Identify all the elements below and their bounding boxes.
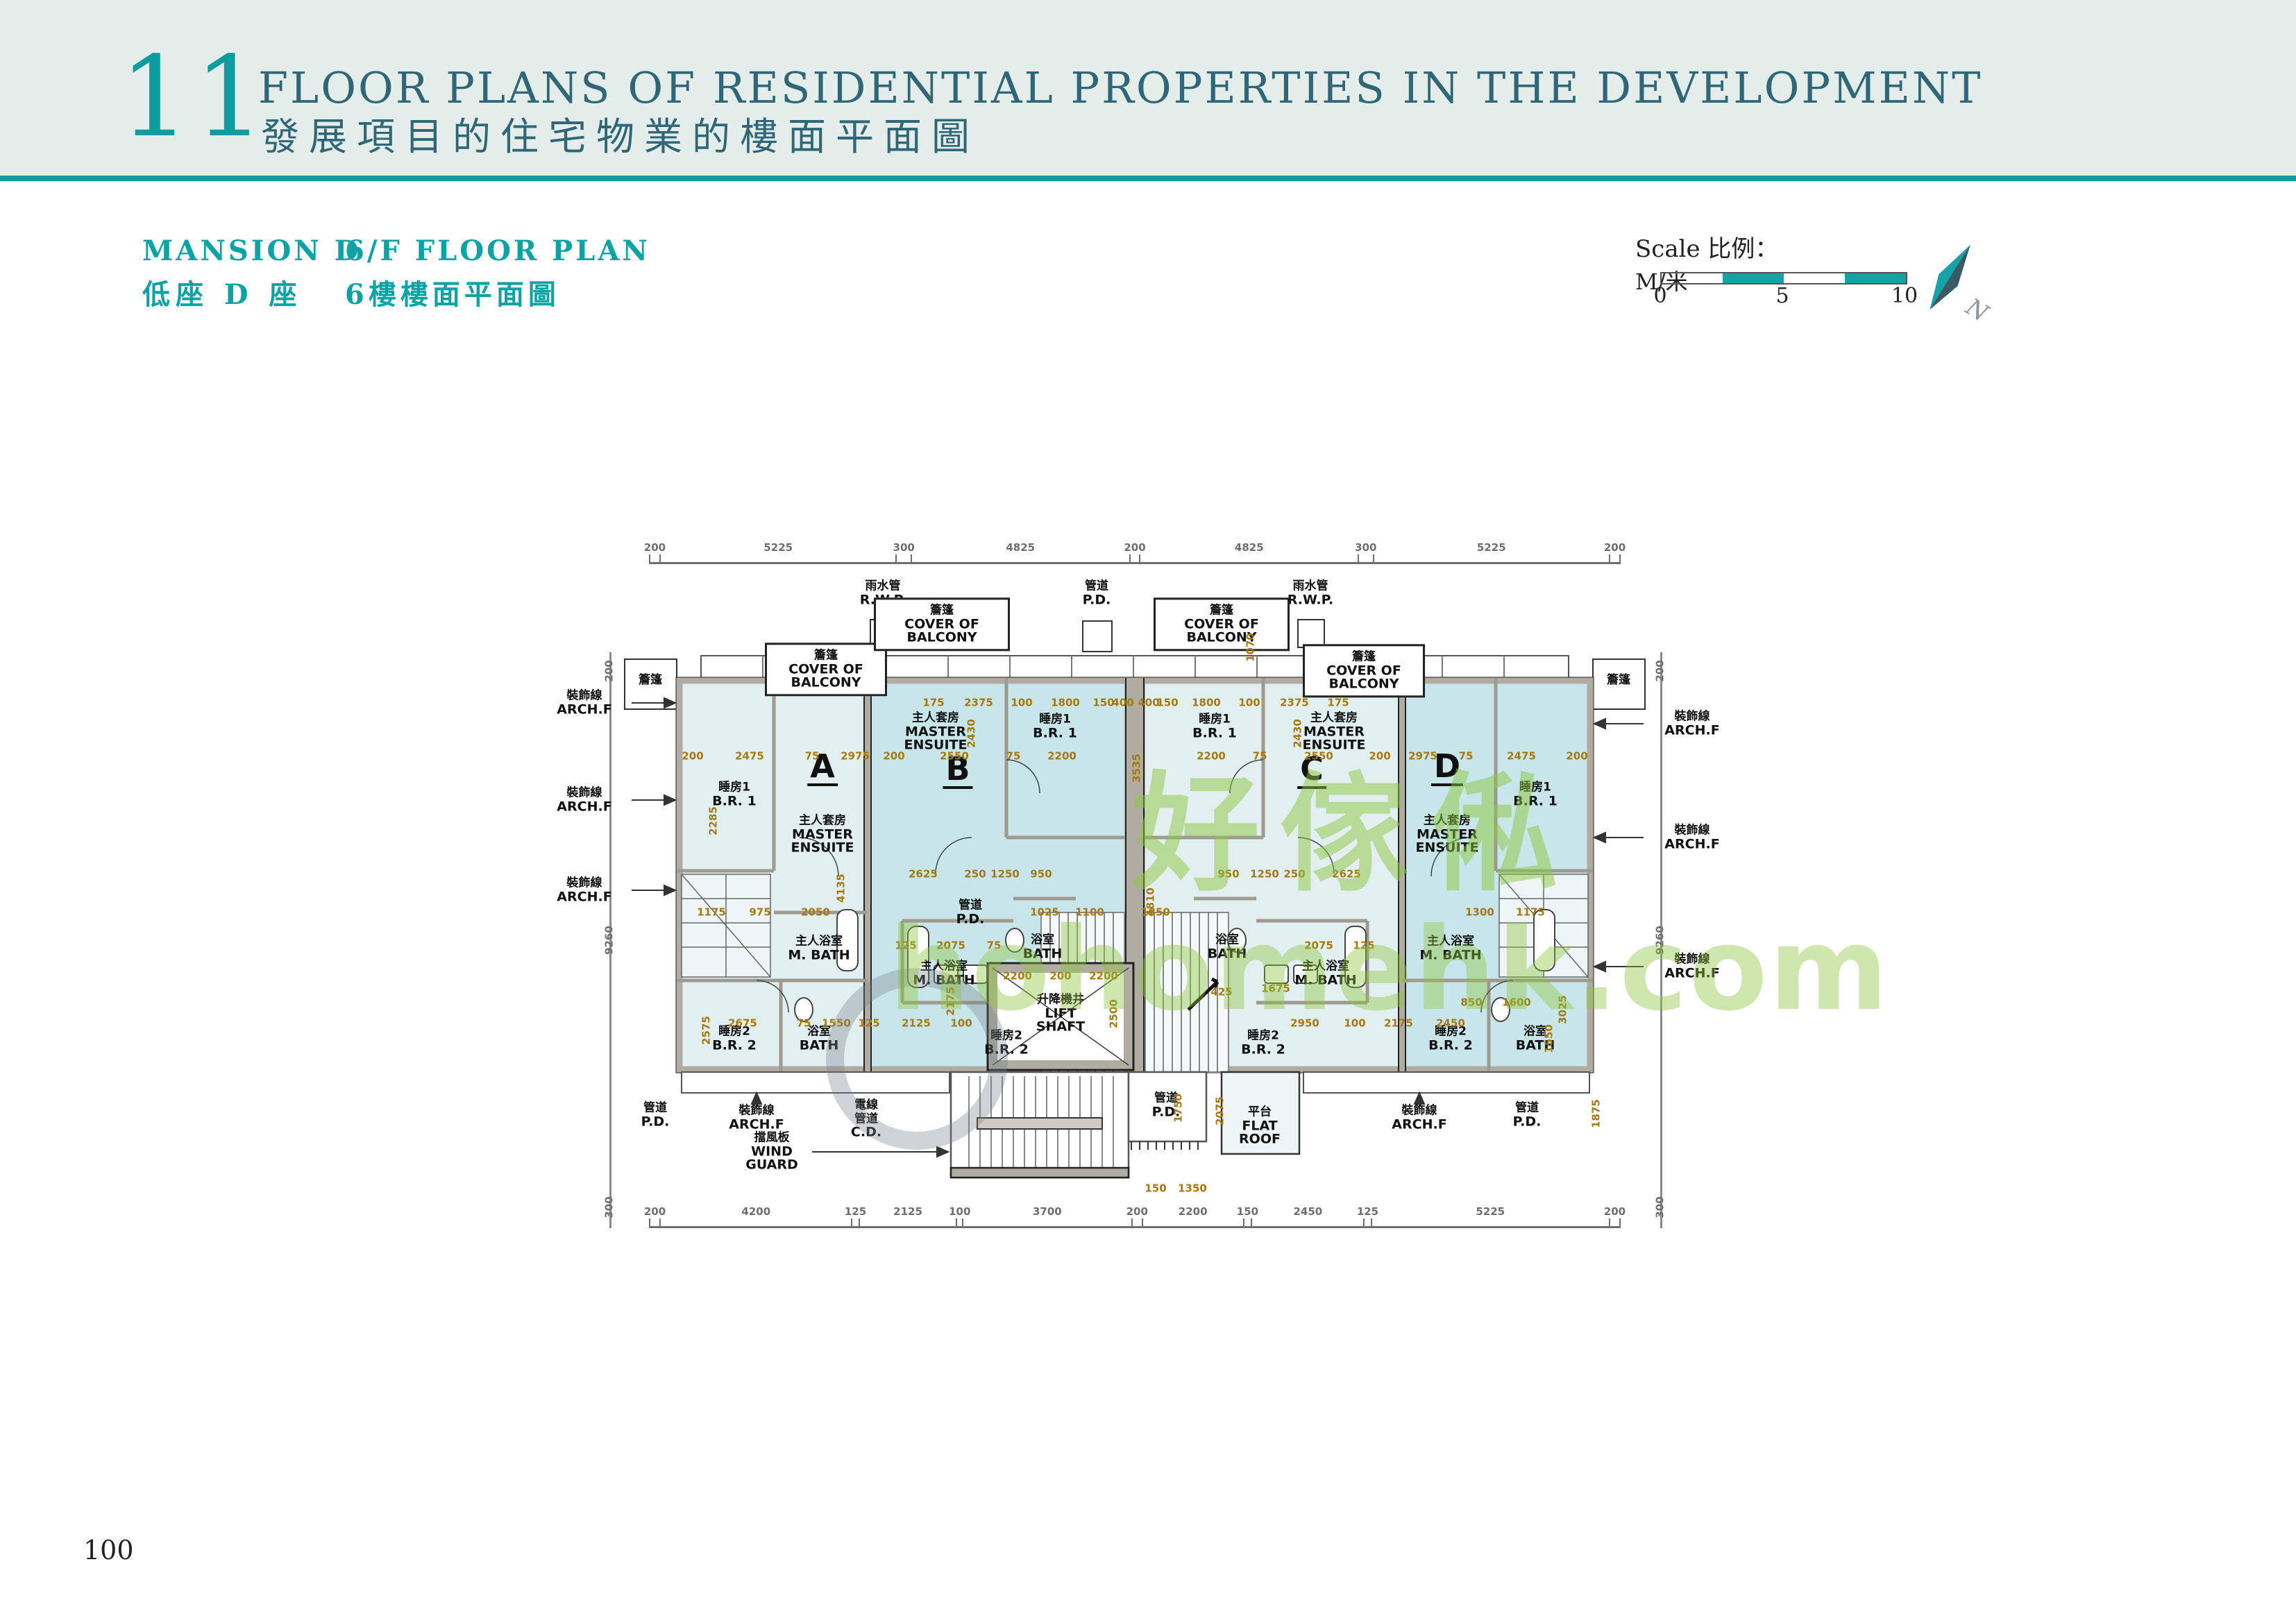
label-archf-bottom-right: 裝飾線ARCH.F (1392, 1104, 1446, 1131)
dim-2575: 2575 (702, 1016, 712, 1045)
label-canopy-left: 簷篷 (639, 674, 662, 688)
dimension-segment: 2200 (1142, 1218, 1243, 1228)
mansion-name: MANSION D (142, 235, 362, 267)
scale-tick-0: 0 (1653, 286, 1666, 307)
svg-text:N: N (1960, 293, 1991, 321)
dim-75: 75 (987, 941, 1002, 951)
label-d-br1: 睡房1B.R. 1 (1513, 781, 1558, 808)
label-lift-shaft: 升降機井LIFT SHAFT (1036, 993, 1085, 1034)
mansion-name-chinese: 低座 D 座 (142, 272, 303, 312)
dim-200: 200 (1049, 971, 1071, 982)
dim-150: 150 (1145, 1184, 1166, 1194)
dim-100: 100 (950, 1019, 972, 1029)
dim-200: 200 (1369, 751, 1390, 762)
label-archf-bottom-left: 裝飾線ARCH.F (729, 1104, 784, 1131)
label-cover-balcony-right: 簷篷COVER OF BALCONY (1303, 644, 1425, 697)
label-c-br1: 睡房1B.R. 1 (1192, 713, 1237, 740)
label-c-master-ensuite: 主人套房MASTER ENSUITE (1302, 711, 1365, 752)
dim-2450: 2450 (1436, 1019, 1465, 1029)
dimension-segment: 300 (1358, 554, 1372, 564)
dim-200: 200 (682, 751, 703, 762)
label-cd-center: 電線 管道C.D. (851, 1098, 881, 1139)
dim-2550: 2550 (1304, 751, 1333, 762)
dimension-segment: 4200 (659, 1218, 851, 1228)
bottom-dimension-row: 2004200125212510037002002200150245012552… (649, 1200, 1621, 1228)
dim-1675: 1675 (1261, 984, 1290, 994)
dim-2200: 2200 (1089, 971, 1118, 982)
dim-850: 850 (1460, 998, 1482, 1008)
dim-75: 75 (797, 1019, 811, 1029)
dim-2675: 2675 (728, 1019, 757, 1029)
dim-4135: 4135 (836, 874, 847, 903)
dim-2200: 2200 (1197, 751, 1226, 762)
page-number: 100 (83, 1537, 134, 1563)
dim-1850: 1850 (1141, 908, 1170, 918)
label-c-br2: 睡房2B.R. 2 (1241, 1029, 1285, 1056)
floor-plan: 2005225300482520048253005225200 20042001… (527, 524, 1725, 1305)
dim-1070: 1070 (1246, 633, 1256, 662)
label-canopy-right: 簷篷 (1607, 674, 1630, 688)
label-archf-right-3: 裝飾線ARCH.F (1664, 953, 1719, 980)
dim-2625: 2625 (909, 869, 938, 880)
dim-2125: 2125 (902, 1019, 931, 1029)
dim-2075: 2075 (1215, 1096, 1226, 1125)
left-dim-200: 200 (605, 660, 615, 681)
dim-1175: 1175 (1516, 908, 1545, 918)
dim-250: 250 (1283, 869, 1305, 880)
dim-3535: 3535 (1132, 754, 1142, 783)
dimension-segment: 200 (649, 1218, 659, 1228)
label-pd-bottom-right: 管道P.D. (1513, 1101, 1542, 1128)
label-c-bath: 浴室BATH (1208, 933, 1247, 960)
header-rule (0, 176, 2296, 181)
dim-1025: 1025 (1030, 908, 1059, 918)
dim-150: 150 (1156, 698, 1178, 708)
north-arrow-icon: N (1907, 237, 1991, 321)
floor-plan-title-chinese: 6樓樓面平面圖 (345, 272, 560, 312)
dimension-segment: 4825 (1139, 554, 1358, 564)
dim-1100: 1100 (1075, 908, 1104, 918)
dim-1550: 1550 (1544, 1024, 1555, 1053)
dim-2950: 2950 (1290, 1019, 1319, 1029)
dim-75: 75 (1253, 751, 1267, 762)
dim-200: 200 (1566, 751, 1587, 762)
label-wind-guard: 擋風板WIND GUARD (745, 1131, 798, 1172)
dimension-segment: 3700 (962, 1218, 1131, 1228)
dim-100: 100 (1344, 1019, 1365, 1029)
dim-2200: 2200 (1047, 751, 1077, 762)
dim-1300: 1300 (1465, 908, 1494, 918)
right-dim-200: 200 (1655, 660, 1666, 681)
dim-2975: 2975 (841, 751, 870, 762)
dimension-segment: 200 (1609, 1218, 1621, 1228)
dimension-segment: 200 (1129, 554, 1140, 564)
dim-2075: 2075 (936, 941, 965, 951)
dim-1250: 1250 (1250, 869, 1279, 880)
dim-2475: 2475 (735, 751, 764, 762)
dimension-segment: 125 (851, 1218, 858, 1228)
dim-175: 175 (922, 698, 944, 708)
dim-2175: 2175 (1384, 1019, 1413, 1029)
brochure-page: { "header": { "chapter": "11", "title_en… (0, 0, 2296, 1623)
dim-2475: 2475 (1507, 751, 1536, 762)
dim-2375: 2375 (964, 698, 993, 708)
dim-175: 175 (1327, 698, 1349, 708)
dim-2075: 2075 (1304, 941, 1333, 951)
dim-1250: 1250 (990, 869, 1020, 880)
label-cover-balcony-cd: 簷篷COVER OF BALCONY (1154, 597, 1290, 651)
scale-tick-5: 5 (1775, 286, 1789, 307)
dim-75: 75 (805, 751, 820, 762)
label-archf-left-2: 裝飾線ARCH.F (557, 786, 611, 813)
dim-2430: 2430 (967, 719, 977, 748)
label-a-br1: 睡房1B.R. 1 (712, 781, 757, 808)
label-archf-right-2: 裝飾線ARCH.F (1664, 824, 1719, 851)
dim-1875: 1875 (1592, 1099, 1602, 1128)
label-archf-right-1: 裝飾線ARCH.F (1664, 710, 1719, 737)
label-flat-roof: 平台FLAT ROOF (1239, 1105, 1281, 1146)
label-archf-left-3: 裝飾線ARCH.F (557, 876, 611, 903)
label-b-bath: 浴室BATH (1023, 933, 1063, 960)
label-b-mbath: 主人浴室M. BATH (913, 960, 974, 987)
dim-100: 100 (1011, 698, 1032, 708)
dimension-segment: 2125 (859, 1218, 956, 1228)
dim-1175: 1175 (697, 908, 726, 918)
dimension-segment: 150 (1243, 1218, 1251, 1228)
dim-125: 125 (858, 1019, 879, 1029)
dim-400: 400 (1112, 698, 1133, 708)
dim-2500: 2500 (1109, 999, 1120, 1028)
label-pd-top: 管道P.D. (1083, 579, 1111, 606)
label-d-mbath: 主人浴室M. BATH (1419, 935, 1481, 962)
dim-2625: 2625 (1332, 869, 1361, 880)
dim-2200: 2200 (1003, 971, 1032, 982)
dimension-segment: 4825 (911, 554, 1129, 564)
label-pd-bottom-left: 管道P.D. (641, 1101, 670, 1128)
label-pd-mid-left: 管道P.D. (956, 899, 985, 926)
dimension-segment: 200 (649, 554, 659, 564)
page-title: FLOOR PLANS OF RESIDENTIAL PROPERTIES IN… (258, 67, 1983, 110)
chapter-number: 11 (119, 42, 269, 153)
label-c-mbath: 主人浴室M. BATH (1294, 960, 1356, 987)
dim-1600: 1600 (1502, 998, 1531, 1008)
dim-150: 150 (1092, 698, 1114, 708)
dimension-segment: 125 (1363, 1218, 1370, 1228)
label-rwp-right: 雨水管R.W.P. (1288, 579, 1333, 606)
dimension-segment: 2450 (1251, 1218, 1363, 1228)
dimension-segment: 5225 (1371, 1218, 1609, 1228)
dim-1550: 1550 (822, 1019, 851, 1029)
left-dim-300: 300 (605, 1196, 615, 1218)
dim-125: 125 (1353, 941, 1374, 951)
dim-975: 975 (749, 908, 770, 918)
top-dimension-row: 2005225300482520048253005225200 (649, 536, 1621, 564)
label-cover-balcony-left: 簷篷COVER OF BALCONY (765, 643, 887, 696)
dimension-segment: 200 (1131, 1218, 1142, 1228)
dim-2975: 2975 (1408, 751, 1437, 762)
dim-1350: 1350 (1178, 1184, 1207, 1194)
dim-950: 950 (1030, 869, 1052, 880)
label-b-br1: 睡房1B.R. 1 (1033, 713, 1077, 740)
label-archf-left-1: 裝飾線ARCH.F (557, 689, 611, 716)
dim-2285: 2285 (709, 806, 719, 835)
dim-250: 250 (964, 869, 986, 880)
scale-label: Scale 比例： (1635, 237, 1778, 261)
dimension-segment: 5225 (1373, 554, 1610, 564)
label-a-master-ensuite: 主人套房MASTER ENSUITE (791, 814, 854, 855)
dim-75: 75 (1459, 751, 1474, 762)
dim-2375: 2375 (1280, 698, 1309, 708)
label-cover-balcony-ab: 簷篷COVER OF BALCONY (874, 597, 1010, 651)
dim-2050: 2050 (801, 908, 830, 918)
floor-plan-title: 6/F FLOOR PLAN (345, 235, 650, 267)
dim-3025: 3025 (1558, 995, 1569, 1024)
dimension-segment: 5225 (659, 554, 896, 564)
dimension-segment: 100 (956, 1218, 962, 1228)
dim-75: 75 (1006, 751, 1021, 762)
dim-2430: 2430 (1293, 719, 1303, 748)
label-b-master-ensuite: 主人套房MASTER ENSUITE (904, 711, 967, 752)
scale-bar (1660, 272, 1907, 284)
label-b-br2: 睡房2B.R. 2 (984, 1029, 1029, 1056)
right-dim-300: 300 (1655, 1196, 1666, 1218)
dim-950: 950 (1217, 869, 1239, 880)
label-a-mbath: 主人浴室M. BATH (788, 935, 850, 962)
dim-100: 100 (1238, 698, 1260, 708)
page-title-chinese: 發展項目的住宅物業的樓面平面圖 (261, 118, 979, 156)
label-d-master-ensuite: 主人套房MASTER ENSUITE (1415, 814, 1478, 855)
dim-425: 425 (1210, 987, 1232, 998)
dim-1800: 1800 (1192, 698, 1221, 708)
dimension-segment: 200 (1609, 554, 1621, 564)
dim-1750: 1750 (1174, 1094, 1184, 1123)
dim-2175: 2175 (946, 987, 956, 1016)
dimension-segment: 300 (895, 554, 910, 564)
dim-200: 200 (883, 751, 904, 762)
left-dim-9260: 9260 (605, 926, 615, 955)
dim-1800: 1800 (1051, 698, 1080, 708)
right-dim-9260: 9260 (1655, 926, 1666, 955)
dim-2550: 2550 (940, 751, 969, 762)
dim-125: 125 (895, 941, 916, 951)
